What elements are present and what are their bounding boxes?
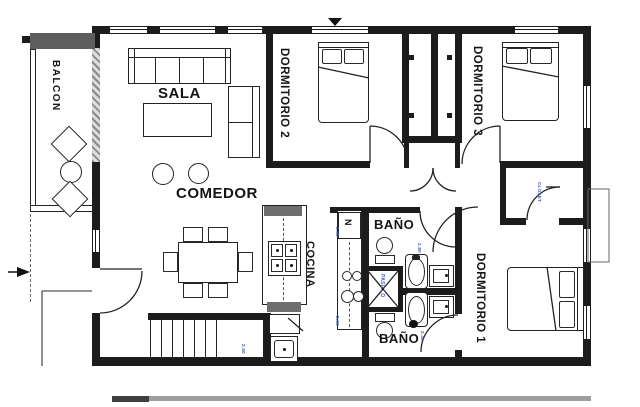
wall-dorm1-left-b	[455, 350, 462, 360]
sofa-divider	[155, 58, 156, 84]
room-label-bedroom3: DORMITORIO 3	[471, 46, 483, 136]
door-arc-closet	[527, 187, 560, 220]
wall-stairs-top	[148, 313, 271, 320]
pillow	[506, 48, 528, 64]
closet-label: CLOSET	[537, 182, 542, 202]
dining-table	[178, 242, 238, 283]
burner-dot	[276, 249, 279, 252]
balcony-table	[60, 161, 82, 183]
projection-dashed-line	[30, 214, 31, 302]
burner-dot	[276, 264, 279, 267]
door-arc-linen-left	[410, 168, 433, 191]
balcony-chair	[51, 126, 88, 163]
wall-walkin-bottom-b	[559, 218, 587, 225]
dimension-label: 2.80	[335, 227, 340, 237]
wall-hall-top	[266, 161, 370, 168]
stair-tread	[205, 318, 206, 357]
pillow	[530, 48, 552, 64]
dimension-label: 2.80	[241, 344, 246, 354]
wall-walkin-left	[500, 161, 506, 225]
stair-tread	[194, 318, 195, 357]
floor-plan: BALCON SALA COMEDOR DORMITORIO 2 DORMITO…	[0, 0, 640, 407]
dimension-label: 2.80	[417, 243, 422, 253]
room-label-bedroom1: DORMITORIO 1	[474, 253, 486, 343]
loveseat-back-line	[252, 86, 253, 158]
toilet-bowl	[376, 237, 393, 254]
window	[312, 27, 368, 33]
sink-bowl	[353, 291, 364, 302]
north-triangle-marker	[328, 18, 342, 26]
dining-chair	[183, 227, 203, 242]
dining-chair	[208, 283, 228, 298]
pillow	[322, 49, 342, 64]
headboard-line	[577, 267, 578, 331]
closet-mark	[409, 113, 414, 118]
wall-closet-a	[402, 26, 409, 142]
dining-chair	[208, 227, 228, 242]
room-label-bath-bottom: BAÑO	[379, 331, 419, 346]
balcony-rail-left	[30, 49, 36, 211]
window	[584, 229, 590, 262]
room-label-living: SALA	[158, 85, 201, 102]
toilet-tank	[375, 255, 395, 264]
coffee-table	[143, 103, 212, 137]
dining-chair	[238, 252, 253, 272]
fridge-label: N	[343, 219, 353, 226]
sofa-divider	[134, 48, 135, 84]
wall-closet-b	[431, 26, 438, 142]
dining-chair	[163, 252, 178, 272]
room-label-kitchen: COCINA	[304, 241, 316, 287]
wall-closet-c	[455, 26, 462, 142]
pillow	[559, 271, 575, 298]
burner-dot	[290, 249, 293, 252]
sink-bowl	[342, 271, 352, 281]
vanity-faucet-dot	[445, 305, 448, 308]
wall-dorm3-bottom	[500, 161, 587, 168]
pillow	[344, 49, 364, 64]
balcony-glass-door	[92, 48, 100, 162]
sink-bowl	[352, 271, 362, 281]
wall-sala-dorm2	[266, 26, 273, 168]
shaft-label: PASILLO	[379, 274, 385, 297]
room-label-bath-top: BAÑO	[374, 217, 414, 232]
stair-tread	[183, 318, 184, 357]
entry-arrow-icon	[17, 267, 30, 277]
wall-bottom	[92, 357, 591, 366]
door-arc-entry	[100, 271, 142, 313]
room-label-balcony: BALCON	[50, 60, 61, 112]
window	[584, 306, 590, 339]
tub-faucet	[412, 255, 420, 260]
window	[228, 27, 262, 33]
toilet-tank	[375, 313, 395, 322]
stair-tread	[216, 318, 217, 357]
dimension-label: 2.80	[335, 316, 340, 326]
kitchen-cabinet	[269, 314, 300, 334]
pouf	[188, 163, 209, 184]
headboard-line	[318, 47, 369, 48]
wall-niche-left	[404, 143, 409, 168]
closet-mark	[447, 55, 452, 60]
pillow	[559, 301, 575, 328]
bathtub-basin	[408, 258, 425, 286]
burner-dot	[290, 264, 293, 267]
closet-mark	[409, 55, 414, 60]
counter-edge-dashed	[349, 242, 350, 327]
entry-opening	[92, 268, 100, 313]
wall-closet-bottom	[402, 136, 462, 143]
stair-tread	[150, 318, 151, 357]
tub-faucet	[409, 320, 418, 328]
pouf	[152, 163, 174, 185]
dimension-label: 2.40	[420, 331, 425, 341]
exterior-ledge	[588, 189, 609, 262]
door-arc-bath-top	[420, 211, 456, 247]
window	[584, 86, 590, 128]
loveseat-divider	[229, 122, 252, 123]
door-arc-linen-right	[433, 168, 456, 191]
exterior-nub	[22, 36, 30, 43]
closet-mark	[447, 113, 452, 118]
lower-level-line-dark	[112, 396, 149, 402]
wall-walkin-bottom-a	[500, 218, 526, 225]
stair-tread	[172, 318, 173, 357]
appliance-dot	[283, 348, 286, 351]
stair-tread	[161, 318, 162, 357]
wall-niche-right	[455, 143, 460, 168]
dining-chair	[183, 283, 203, 298]
vanity-faucet-dot	[445, 274, 448, 277]
wall-dorm1-left-a	[455, 207, 462, 314]
sofa-divider	[179, 58, 180, 84]
room-label-dining: COMEDOR	[176, 185, 258, 202]
window	[93, 230, 99, 252]
window	[160, 27, 215, 33]
counter-cap	[264, 206, 302, 216]
wall-kitchen-right	[362, 207, 369, 358]
sofa-divider	[225, 48, 226, 84]
window	[515, 27, 558, 33]
counter-cap	[267, 302, 301, 312]
lower-level-line	[112, 396, 591, 401]
balcony-top-band	[30, 33, 95, 49]
sofa-divider	[203, 58, 204, 84]
room-label-bedroom2: DORMITORIO 2	[278, 48, 290, 138]
window	[110, 27, 147, 33]
